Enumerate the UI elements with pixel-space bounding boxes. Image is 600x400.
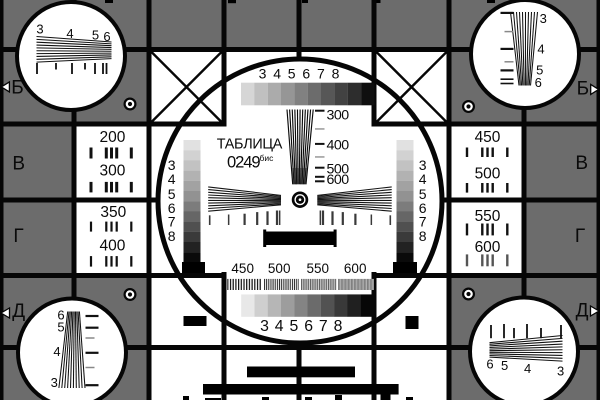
svg-text:3: 3 <box>51 375 58 390</box>
svg-text:450: 450 <box>475 129 501 146</box>
svg-text:8: 8 <box>334 318 343 335</box>
svg-text:400: 400 <box>327 137 350 153</box>
svg-text:350: 350 <box>100 204 126 221</box>
svg-text:300: 300 <box>99 163 125 180</box>
svg-text:4: 4 <box>537 42 544 57</box>
svg-text:4: 4 <box>419 171 427 187</box>
svg-text:3: 3 <box>259 65 267 81</box>
svg-text:7: 7 <box>419 213 427 229</box>
svg-text:3: 3 <box>260 318 269 335</box>
svg-text:8: 8 <box>332 65 340 81</box>
svg-text:3: 3 <box>540 11 547 26</box>
svg-text:Б: Б <box>577 79 589 100</box>
svg-text:600: 600 <box>327 172 350 188</box>
svg-text:6: 6 <box>103 29 110 44</box>
svg-text:5: 5 <box>92 28 99 43</box>
svg-text:ТАБЛИЦА: ТАБЛИЦА <box>217 137 283 153</box>
svg-text:Г: Г <box>13 226 23 247</box>
svg-text:550: 550 <box>307 261 330 276</box>
svg-text:500: 500 <box>268 261 291 276</box>
svg-text:6: 6 <box>535 75 542 90</box>
svg-text:5: 5 <box>57 320 64 335</box>
svg-text:450: 450 <box>231 261 254 276</box>
svg-text:550: 550 <box>475 208 501 225</box>
svg-text:0249: 0249 <box>227 153 260 172</box>
svg-text:500: 500 <box>475 165 501 182</box>
svg-text:В: В <box>575 153 588 174</box>
svg-text:8: 8 <box>419 228 427 244</box>
svg-text:7: 7 <box>319 318 328 335</box>
svg-text:Д: Д <box>576 301 589 322</box>
svg-text:600: 600 <box>475 239 501 256</box>
svg-text:3: 3 <box>557 364 564 379</box>
svg-text:4: 4 <box>273 65 281 81</box>
svg-text:Г: Г <box>575 226 585 247</box>
svg-text:В: В <box>12 154 25 175</box>
svg-text:5: 5 <box>288 65 296 81</box>
svg-text:4: 4 <box>168 171 176 187</box>
svg-text:4: 4 <box>524 361 531 376</box>
svg-text:Д: Д <box>12 301 25 322</box>
svg-text:6: 6 <box>486 357 493 372</box>
svg-text:400: 400 <box>99 237 125 254</box>
svg-text:5: 5 <box>501 358 508 373</box>
svg-text:5: 5 <box>290 318 299 335</box>
svg-text:4: 4 <box>53 344 60 359</box>
svg-text:8: 8 <box>168 228 176 244</box>
svg-text:6: 6 <box>304 318 313 335</box>
svg-text:4: 4 <box>275 318 284 335</box>
svg-text:3: 3 <box>36 22 43 37</box>
svg-text:бис: бис <box>260 153 275 163</box>
svg-text:7: 7 <box>168 213 176 229</box>
svg-text:4: 4 <box>66 26 73 41</box>
svg-text:600: 600 <box>344 261 367 276</box>
svg-text:7: 7 <box>317 65 325 81</box>
svg-text:200: 200 <box>99 129 125 146</box>
svg-text:6: 6 <box>302 65 310 81</box>
svg-text:Б: Б <box>11 78 23 99</box>
svg-text:300: 300 <box>327 108 350 124</box>
